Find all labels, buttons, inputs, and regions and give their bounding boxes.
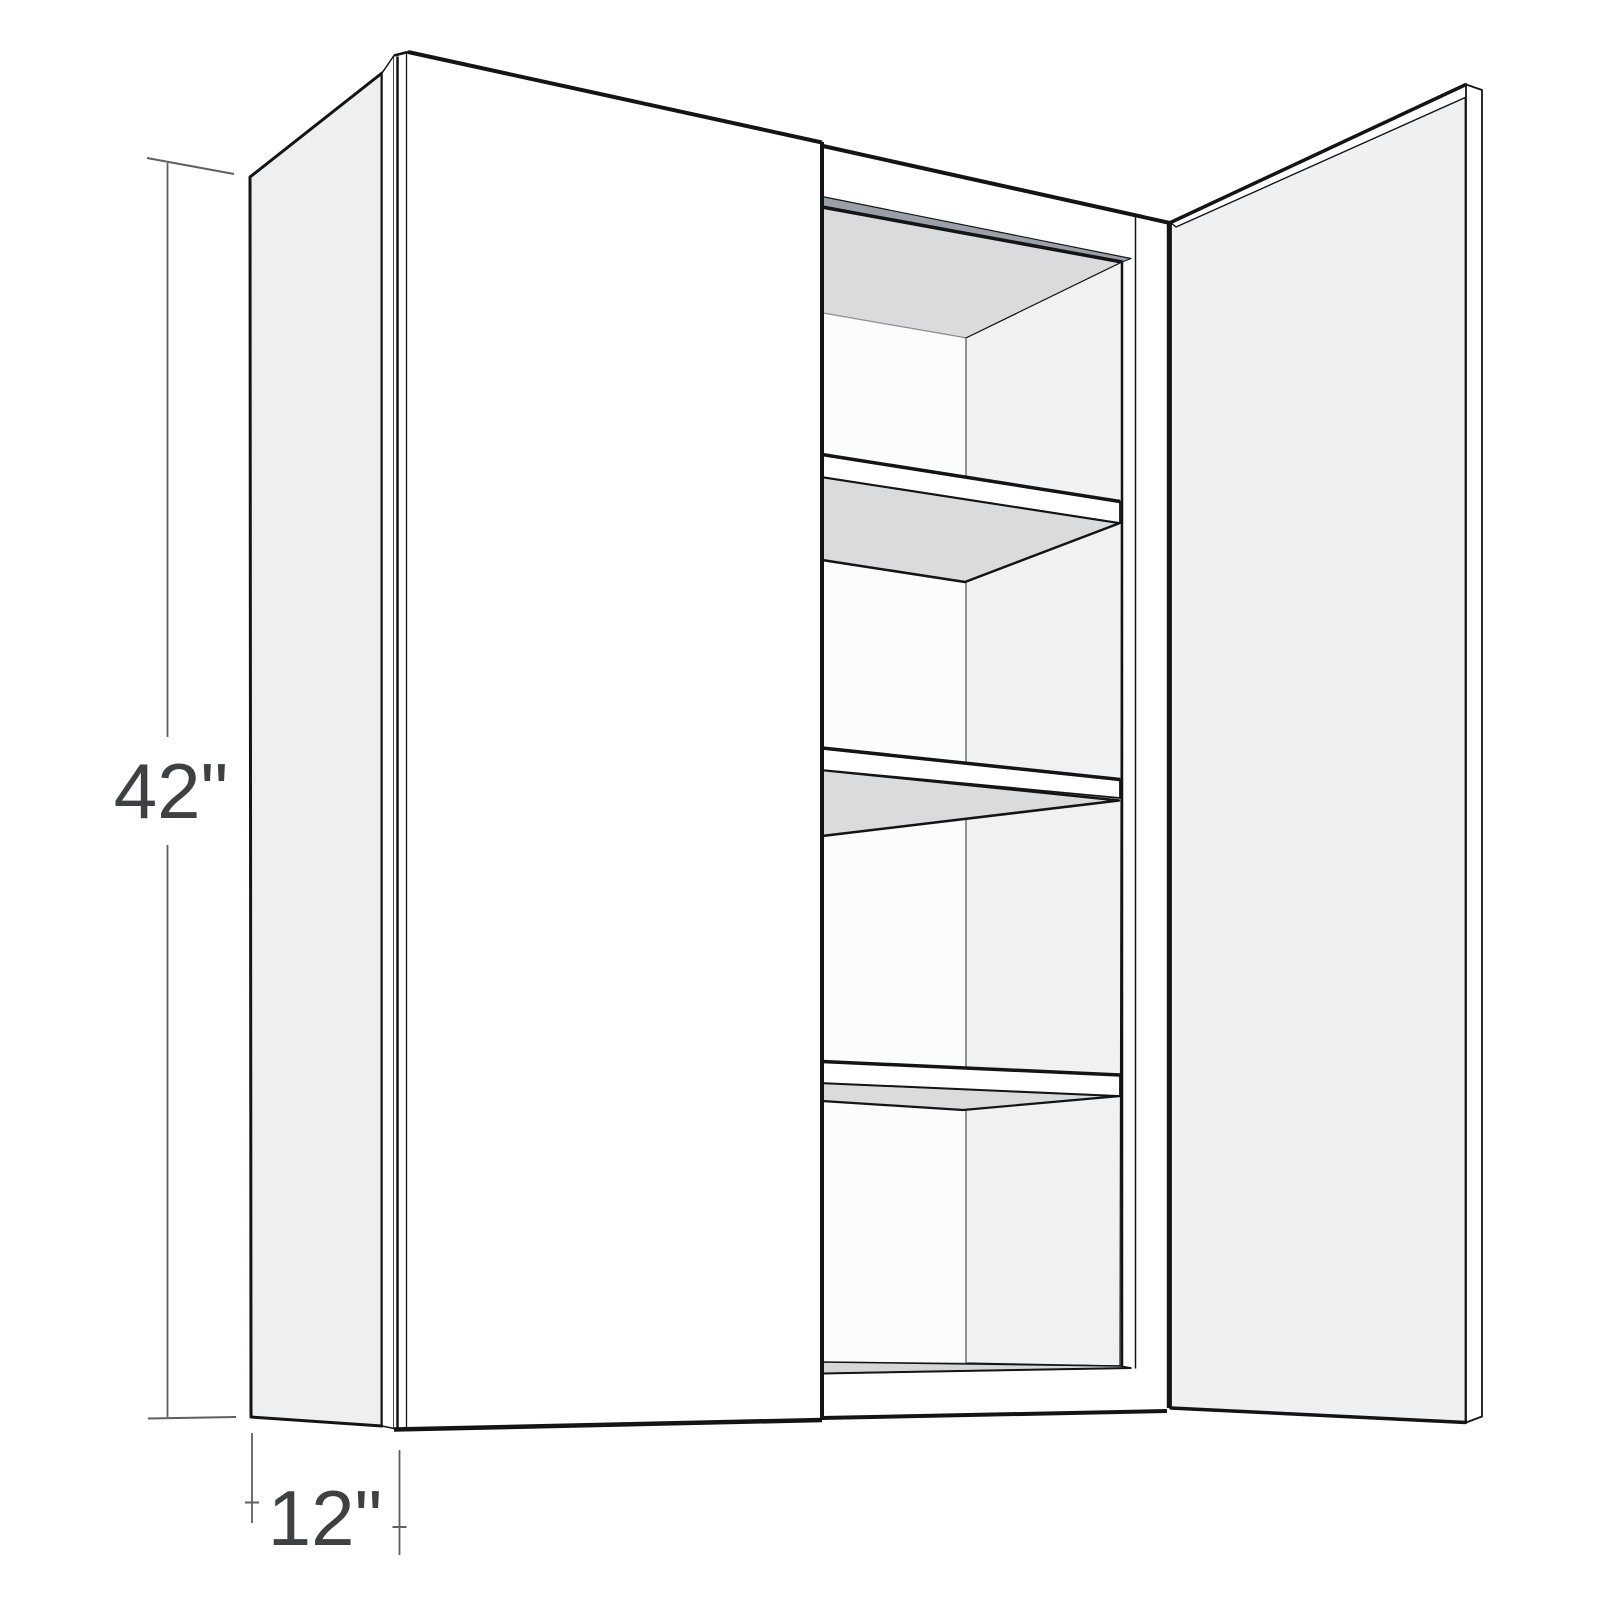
cabinet-left-section — [250, 52, 822, 1430]
open-door-outer-band — [1466, 85, 1482, 1423]
height-tick-bottom — [148, 1417, 236, 1419]
product-diagram: 42" 12" — [0, 0, 1600, 1600]
depth-dimension-label: 12" — [268, 1474, 382, 1562]
height-tick-top — [147, 158, 234, 174]
cabinet-line-drawing: 42" 12" — [0, 0, 1600, 1600]
left-front-edge-strip — [382, 56, 394, 1429]
left-side-panel — [250, 73, 382, 1426]
open-door-face[interactable] — [1171, 85, 1467, 1423]
open-right-door[interactable] — [1168, 85, 1482, 1423]
closed-left-door[interactable] — [394, 52, 822, 1430]
height-dimension-label: 42" — [114, 747, 228, 835]
cabinet-body — [822, 143, 1170, 1421]
